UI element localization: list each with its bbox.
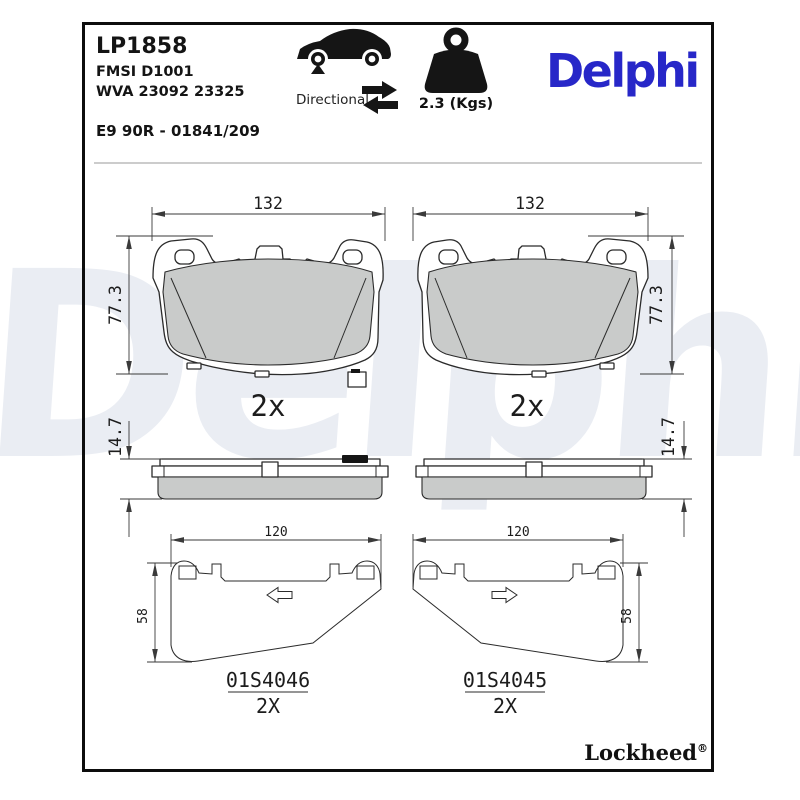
pad-height-value: 77.3 — [647, 285, 666, 325]
shim-code-right: 01S4045 2X — [463, 668, 547, 718]
delphi-logo: Delphi — [546, 44, 698, 98]
weight-icon — [425, 31, 488, 93]
dim-shim-height-right: 58 — [606, 563, 648, 662]
pad-quantity-left: 2x — [251, 389, 286, 423]
shim-height-value: 58 — [136, 608, 151, 624]
pad-front-view-left — [153, 239, 383, 377]
shim-drawing-left — [171, 561, 381, 661]
shim-drawing-right — [413, 561, 623, 661]
pad-width-value: 132 — [515, 194, 545, 213]
directional-label: Directional — [296, 92, 369, 108]
brake-pad-datasheet: Delphi LP1858 FMSI D1001 WVA 23092 23325… — [0, 0, 800, 800]
pad-thickness-value: 14.7 — [106, 417, 125, 457]
lockheed-logo: Lockheed® — [500, 740, 708, 765]
car-icon — [297, 29, 391, 74]
pad-side-view-left — [152, 455, 388, 499]
direction-arrow-left-icon — [267, 588, 292, 603]
shim-height-value: 58 — [620, 608, 635, 624]
registered-trademark-symbol: ® — [697, 742, 708, 755]
shim-quantity-right: 2X — [493, 694, 517, 718]
dim-shim-width-right: 120 — [413, 525, 623, 587]
pad-front-view-right — [418, 239, 648, 377]
dim-shim-width-left: 120 — [171, 525, 381, 587]
weight-value: 2.3 (Kgs) — [419, 96, 493, 112]
pad-side-view-right — [416, 459, 652, 499]
pad-height-value: 77.3 — [106, 285, 125, 325]
technical-drawing: Directional 2.3 (Kgs) 132 — [0, 0, 800, 800]
dim-pad-width-right: 132 — [413, 194, 648, 241]
shim-code-left-value: 01S4046 — [226, 668, 310, 692]
direction-arrow-right-icon — [492, 588, 517, 603]
shim-quantity-left: 2X — [256, 694, 280, 718]
wva-reference: WVA 23092 23325 — [96, 84, 244, 100]
pad-thickness-value: 14.7 — [659, 417, 678, 457]
pad-quantity-right: 2x — [510, 389, 545, 423]
shim-width-value: 120 — [264, 525, 287, 540]
shim-width-value: 120 — [506, 525, 529, 540]
lockheed-logo-text: Lockheed — [584, 740, 697, 765]
front-axle-marker-icon — [311, 64, 325, 74]
dim-pad-width-left: 132 — [152, 194, 385, 241]
fmsi-reference: FMSI D1001 — [96, 64, 194, 80]
homologation-number: E9 90R - 01841/209 — [96, 122, 260, 140]
wear-sensor-mark — [342, 455, 368, 463]
pad-width-value: 132 — [253, 194, 283, 213]
dim-shim-height-left: 58 — [136, 563, 192, 662]
wear-sensor-tab — [348, 369, 366, 387]
shim-code-left: 01S4046 2X — [226, 668, 310, 718]
part-number: LP1858 — [96, 34, 187, 59]
shim-code-right-value: 01S4045 — [463, 668, 547, 692]
